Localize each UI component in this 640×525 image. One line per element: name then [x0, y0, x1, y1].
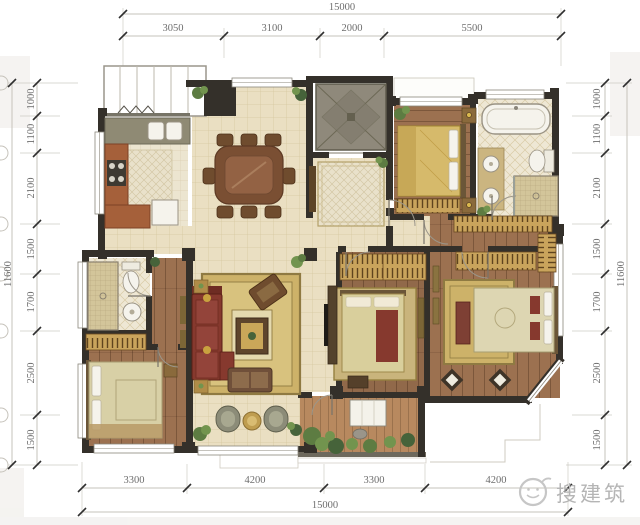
outdoor-steps [430, 404, 540, 462]
foyer [309, 162, 384, 226]
dim-label: 15000 [329, 2, 355, 13]
ottoman [348, 376, 368, 388]
dim-label: 1100 [592, 124, 603, 145]
coffee-table [236, 318, 268, 354]
left-dimensions: 1000 1100 2100 1500 1700 2500 1500 11600 [0, 76, 78, 472]
top-extension-lines [123, 8, 561, 66]
wall-art [418, 298, 424, 338]
dining-window [232, 78, 292, 87]
dim-label: 2100 [26, 178, 37, 199]
bottom-dimensions: 3300 4200 3300 4200 15000 [78, 462, 572, 516]
dim-label: 11600 [3, 261, 14, 287]
wall-art [180, 296, 186, 348]
master-bed [474, 286, 558, 354]
elevator [316, 84, 386, 153]
dim-label: 2500 [26, 363, 37, 384]
kitchen-bottom-counter [105, 205, 150, 228]
dim-label: 1500 [26, 239, 37, 260]
porch [220, 454, 298, 468]
shower [514, 176, 558, 216]
bedroom4-window [78, 364, 87, 438]
bed [86, 360, 162, 440]
kitchen-mat [128, 150, 172, 205]
dim-label: 11600 [616, 261, 627, 287]
dim-label: 5500 [462, 23, 483, 34]
dim-label: 1000 [592, 89, 603, 110]
master-dresser [456, 252, 536, 270]
bed [398, 124, 466, 198]
balcony [104, 66, 206, 116]
bed [340, 290, 406, 372]
top-dimensions: 15000 3050 3100 2000 5500 [119, 2, 565, 66]
bench [456, 302, 470, 344]
dim-label: 1700 [592, 292, 603, 313]
fridge [152, 200, 178, 225]
dim-label: 3300 [364, 475, 385, 486]
dim-label: 2100 [592, 178, 603, 199]
bedroom4-south-window [94, 444, 174, 453]
watermark: 搜建筑 [520, 478, 628, 506]
foyer-rug [318, 162, 384, 226]
right-dimensions: 1000 1100 2100 1500 1700 2500 1500 11600 [566, 79, 632, 469]
dim-label: 2000 [342, 23, 363, 34]
dim-label: 1500 [592, 239, 603, 260]
bathtub [482, 104, 550, 134]
bedroom2-window [400, 97, 462, 106]
dim-label: 15000 [312, 500, 338, 511]
floorplan-svg: 15000 3050 3100 2000 5500 3300 4200 3300… [0, 0, 640, 525]
sink [123, 303, 141, 321]
dim-label: 1500 [592, 430, 603, 451]
garden-rock [353, 429, 367, 439]
dim-label: 1700 [26, 292, 37, 313]
middle-bedroom [334, 254, 426, 388]
loveseat [228, 368, 272, 392]
dim-label: 4200 [245, 475, 266, 486]
stove [107, 160, 126, 186]
masterbath-window [486, 90, 544, 99]
floorplan-page: 15000 3050 3100 2000 5500 3300 4200 3300… [0, 0, 640, 525]
master-closet [538, 234, 556, 272]
shower [88, 262, 118, 330]
toilet [529, 150, 554, 172]
dim-label: 2500 [592, 363, 603, 384]
toilet [122, 262, 140, 293]
dim-label: 1000 [26, 89, 37, 110]
face-logo-icon [520, 478, 551, 505]
dim-label: 1500 [26, 430, 37, 451]
bath2-window [78, 262, 87, 328]
closet-strip [86, 334, 146, 350]
dim-label: 3100 [262, 23, 283, 34]
dim-label: 1100 [26, 124, 37, 145]
walk-in-closet [454, 216, 552, 232]
left-extension-lines [8, 83, 78, 465]
living-window [198, 446, 298, 455]
planter-box [350, 400, 386, 426]
console-table [309, 166, 316, 212]
dim-label: 4200 [486, 475, 507, 486]
dim-label: 3050 [163, 23, 184, 34]
dim-label: 3300 [124, 475, 145, 486]
kitchen-window [95, 132, 104, 214]
watermark-text: 搜建筑 [556, 482, 628, 506]
kitchen-corridor-floor [104, 226, 192, 254]
